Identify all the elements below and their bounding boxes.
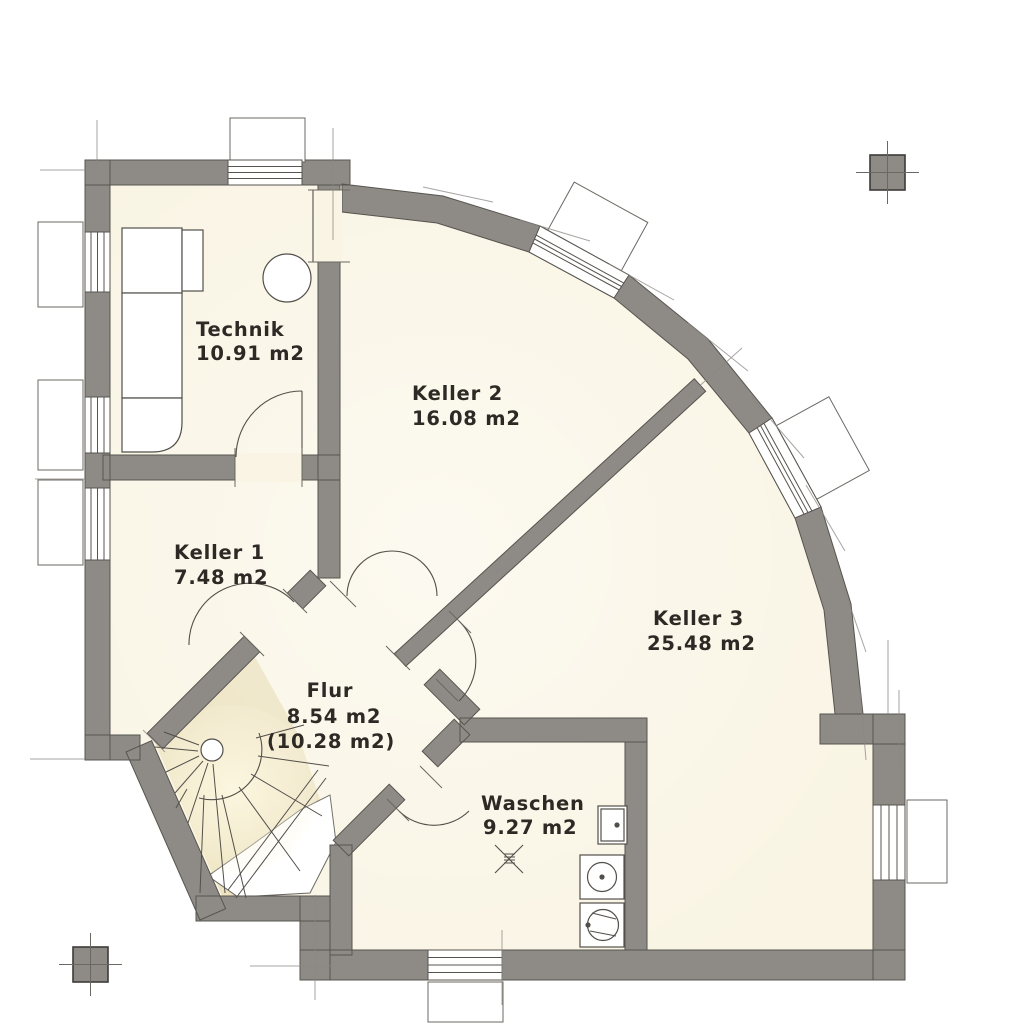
room-label-keller2: Keller 2 — [412, 382, 503, 405]
window-left-keller1 — [38, 480, 110, 565]
window-bottom-waschen — [428, 950, 503, 1022]
window-top — [228, 118, 305, 185]
washing-machine — [580, 855, 624, 899]
room-label-technik: Technik — [196, 318, 285, 341]
room-area-flur-secondary: (10.28 m2) — [267, 730, 395, 753]
boiler — [263, 254, 311, 302]
room-label-keller3: Keller 3 — [653, 607, 744, 630]
room-area-flur: 8.54 m2 — [287, 705, 381, 728]
floor-plan-drawing: Technik 10.91 m2 Keller 2 16.08 m2 Kelle… — [0, 0, 1024, 1024]
floor-plan-canvas: Technik 10.91 m2 Keller 2 16.08 m2 Kelle… — [0, 0, 1024, 1024]
room-area-keller1: 7.48 m2 — [174, 566, 268, 589]
room-area-keller2: 16.08 m2 — [412, 407, 521, 430]
room-area-waschen: 9.27 m2 — [483, 816, 577, 839]
room-label-flur: Flur — [307, 679, 354, 702]
door-opening-technik-keller1 — [235, 453, 302, 482]
stair-newel-post — [201, 739, 223, 761]
sink — [598, 806, 627, 844]
room-label-waschen: Waschen — [481, 792, 585, 815]
room-label-keller1: Keller 1 — [174, 541, 265, 564]
room-area-keller3: 25.48 m2 — [647, 632, 756, 655]
door-opening-technik-keller2 — [316, 190, 342, 262]
room-area-technik: 10.91 m2 — [196, 342, 305, 365]
window-right-keller3 — [873, 800, 947, 883]
tumble-dryer — [580, 903, 624, 947]
